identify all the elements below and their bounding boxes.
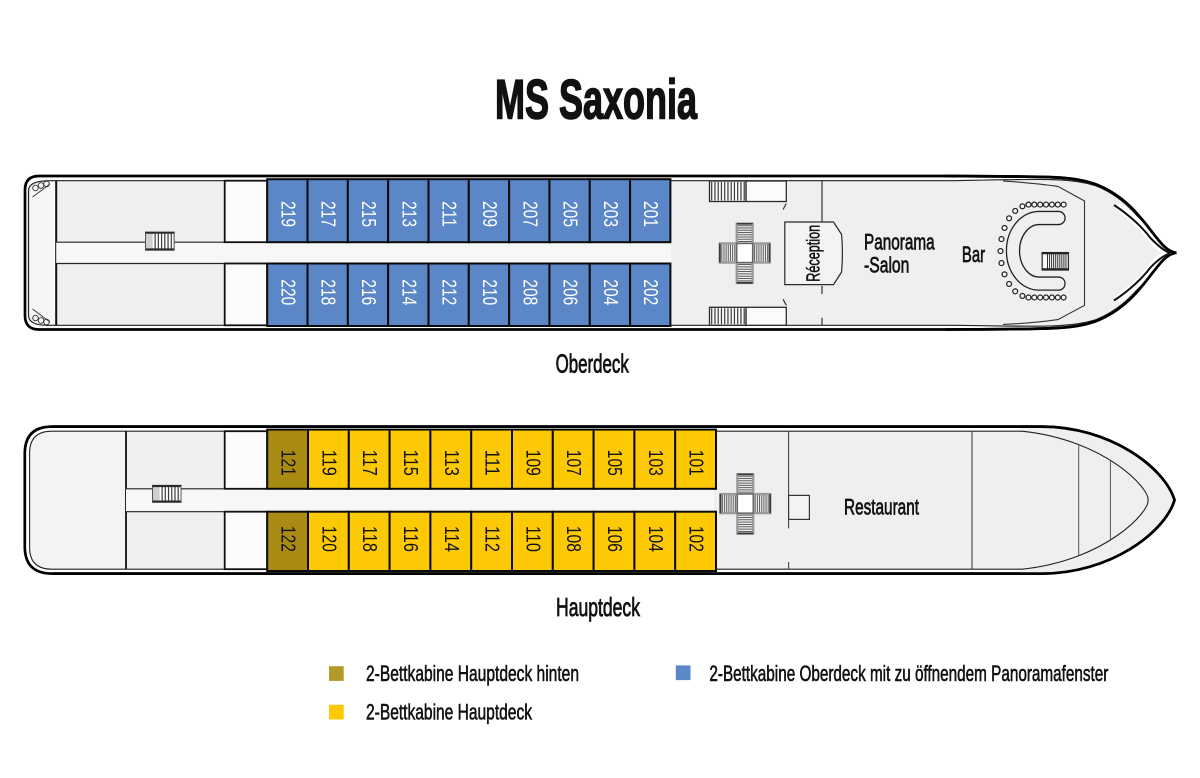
svg-text:Panorama: Panorama — [864, 230, 935, 255]
svg-text:220: 220 — [276, 279, 299, 305]
svg-text:107: 107 — [562, 450, 585, 476]
svg-text:218: 218 — [317, 279, 340, 305]
svg-text:204: 204 — [599, 279, 622, 305]
svg-text:201: 201 — [639, 201, 662, 227]
svg-text:MS Saxonia: MS Saxonia — [495, 67, 698, 130]
svg-text:108: 108 — [562, 526, 585, 552]
svg-text:214: 214 — [397, 279, 420, 305]
svg-text:211: 211 — [438, 201, 461, 227]
svg-text:Oberdeck: Oberdeck — [556, 348, 630, 378]
svg-text:213: 213 — [397, 201, 420, 227]
svg-text:Hauptdeck: Hauptdeck — [556, 592, 641, 622]
svg-text:104: 104 — [644, 526, 667, 552]
svg-text:121: 121 — [277, 450, 300, 476]
svg-text:106: 106 — [603, 526, 626, 552]
svg-text:2-Bettkabine Oberdeck mit zu ö: 2-Bettkabine Oberdeck mit zu öffnendem P… — [709, 661, 1108, 686]
svg-text:210: 210 — [478, 279, 501, 305]
svg-text:203: 203 — [599, 201, 622, 227]
svg-text:207: 207 — [518, 201, 541, 227]
svg-text:-Salon: -Salon — [864, 253, 909, 278]
svg-text:112: 112 — [481, 526, 504, 552]
svg-text:209: 209 — [478, 201, 501, 227]
svg-text:119: 119 — [317, 450, 340, 476]
svg-text:117: 117 — [358, 450, 381, 476]
svg-text:113: 113 — [440, 450, 463, 476]
svg-text:202: 202 — [639, 279, 662, 305]
svg-text:120: 120 — [317, 526, 340, 552]
svg-text:208: 208 — [518, 279, 541, 305]
svg-text:118: 118 — [358, 526, 381, 552]
svg-text:2-Bettkabine Hauptdeck hinten: 2-Bettkabine Hauptdeck hinten — [366, 661, 579, 686]
svg-text:101: 101 — [685, 450, 708, 476]
svg-text:115: 115 — [399, 450, 422, 476]
svg-text:205: 205 — [559, 201, 582, 227]
svg-text:212: 212 — [438, 279, 461, 305]
svg-text:216: 216 — [357, 279, 380, 305]
svg-text:Restaurant: Restaurant — [844, 495, 919, 520]
svg-text:103: 103 — [644, 450, 667, 476]
svg-text:109: 109 — [521, 450, 544, 476]
svg-text:110: 110 — [521, 526, 544, 552]
svg-text:219: 219 — [276, 201, 299, 227]
svg-text:105: 105 — [603, 450, 626, 476]
svg-text:217: 217 — [317, 201, 340, 227]
svg-text:Bar: Bar — [962, 242, 985, 267]
svg-text:111: 111 — [481, 450, 504, 476]
svg-text:116: 116 — [399, 526, 422, 552]
svg-text:102: 102 — [685, 526, 708, 552]
svg-text:206: 206 — [559, 279, 582, 305]
svg-text:114: 114 — [440, 526, 463, 552]
svg-text:Réception: Réception — [804, 225, 824, 282]
svg-text:122: 122 — [277, 526, 300, 552]
svg-text:2-Bettkabine Hauptdeck: 2-Bettkabine Hauptdeck — [366, 700, 533, 725]
svg-text:215: 215 — [357, 201, 380, 227]
